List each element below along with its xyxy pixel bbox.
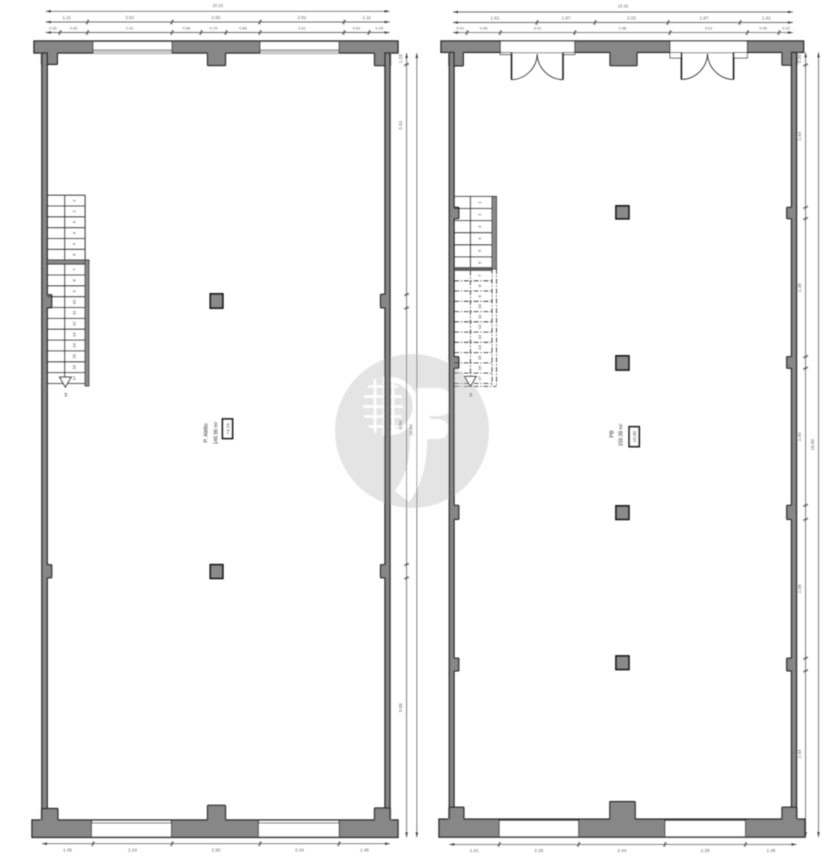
svg-text:1.45: 1.45 xyxy=(63,848,72,853)
svg-text:1.41: 1.41 xyxy=(470,848,479,853)
svg-text:3.01: 3.01 xyxy=(705,26,714,31)
svg-text:1.45: 1.45 xyxy=(767,848,776,853)
svg-text:2.44: 2.44 xyxy=(617,848,626,853)
svg-text:2.28: 2.28 xyxy=(701,848,710,853)
svg-text:2.36: 2.36 xyxy=(797,584,802,593)
svg-text:16.80: 16.80 xyxy=(810,439,815,451)
svg-text:6.34: 6.34 xyxy=(398,420,403,429)
svg-text:2.61: 2.61 xyxy=(298,26,307,31)
svg-text:0.88: 0.88 xyxy=(239,26,248,31)
svg-text:±0.00: ±0.00 xyxy=(632,430,637,442)
svg-text:1.11: 1.11 xyxy=(62,15,71,20)
svg-text:2.50: 2.50 xyxy=(212,848,221,853)
svg-text:15: 15 xyxy=(477,355,482,360)
svg-text:5.88: 5.88 xyxy=(398,703,403,712)
svg-text:1.11: 1.11 xyxy=(362,15,371,20)
svg-text:10: 10 xyxy=(477,303,482,308)
svg-text:16: 16 xyxy=(477,365,482,370)
svg-text:2.44: 2.44 xyxy=(797,749,802,758)
svg-text:2.62: 2.62 xyxy=(212,15,221,20)
svg-text:12: 12 xyxy=(477,324,482,329)
svg-text:0.96: 0.96 xyxy=(759,26,768,31)
svg-text:2.61: 2.61 xyxy=(126,26,135,31)
svg-text:10.10: 10.10 xyxy=(212,3,223,8)
svg-text:1.45: 1.45 xyxy=(360,848,369,853)
svg-text:17: 17 xyxy=(72,375,77,380)
svg-text:1.61: 1.61 xyxy=(491,15,500,20)
svg-text:0.88: 0.88 xyxy=(183,26,192,31)
svg-text:2.40: 2.40 xyxy=(797,432,802,441)
svg-text:0.96: 0.96 xyxy=(480,26,489,31)
svg-text:1.61: 1.61 xyxy=(762,15,771,20)
svg-text:146.96 m²: 146.96 m² xyxy=(214,421,220,444)
svg-text:1.87: 1.87 xyxy=(562,15,571,20)
svg-text:+4.25: +4.25 xyxy=(226,423,231,435)
svg-text:0.25: 0.25 xyxy=(375,26,384,31)
svg-text:10: 10 xyxy=(72,299,77,304)
svg-text:2.36: 2.36 xyxy=(797,283,802,292)
svg-text:159.39 m²: 159.39 m² xyxy=(619,423,625,446)
svg-text:0.25: 0.25 xyxy=(49,26,58,31)
svg-text:0.30: 0.30 xyxy=(797,54,802,63)
svg-text:16.83: 16.83 xyxy=(408,424,413,436)
svg-text:15: 15 xyxy=(72,353,77,358)
svg-text:5.81: 5.81 xyxy=(398,120,403,129)
svg-text:1.28: 1.28 xyxy=(398,54,403,63)
svg-text:18: 18 xyxy=(63,392,68,397)
svg-text:10.10: 10.10 xyxy=(618,4,629,9)
svg-text:0.20: 0.20 xyxy=(456,26,465,31)
svg-text:13: 13 xyxy=(72,332,77,337)
svg-text:2.25: 2.25 xyxy=(534,848,543,853)
svg-text:2.24: 2.24 xyxy=(295,848,304,853)
svg-text:12: 12 xyxy=(72,321,77,326)
svg-text:18: 18 xyxy=(468,392,473,397)
svg-text:P. Altillo: P. Altillo xyxy=(204,423,210,442)
svg-text:0.82: 0.82 xyxy=(70,26,79,31)
svg-text:2.61: 2.61 xyxy=(298,15,307,20)
svg-text:0.82: 0.82 xyxy=(353,26,362,31)
svg-text:3.01: 3.01 xyxy=(534,26,543,31)
svg-text:2.61: 2.61 xyxy=(125,15,134,20)
svg-text:2.44: 2.44 xyxy=(797,131,802,140)
svg-text:2.24: 2.24 xyxy=(128,848,137,853)
svg-text:13: 13 xyxy=(477,334,482,339)
svg-text:17: 17 xyxy=(477,375,482,380)
svg-text:2.68: 2.68 xyxy=(619,26,628,31)
svg-text:14: 14 xyxy=(477,345,482,350)
svg-text:PB: PB xyxy=(610,430,616,438)
svg-text:16: 16 xyxy=(72,364,77,369)
svg-text:0.79: 0.79 xyxy=(210,26,219,31)
svg-text:2.02: 2.02 xyxy=(627,15,636,20)
svg-text:1.97: 1.97 xyxy=(700,15,709,20)
svg-text:14: 14 xyxy=(72,343,77,348)
svg-text:0.20: 0.20 xyxy=(782,26,791,31)
